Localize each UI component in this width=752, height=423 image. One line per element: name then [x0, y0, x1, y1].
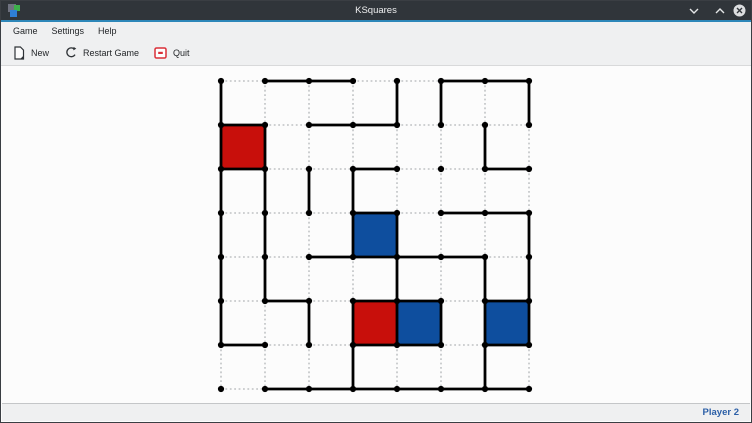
new-button-label: New: [31, 48, 49, 58]
menu-help[interactable]: Help: [91, 22, 124, 40]
captured-squares-layer: [221, 125, 529, 345]
quit-button[interactable]: Quit: [154, 47, 190, 59]
ksquares-window: KSquares Game Settings Help New: [0, 0, 752, 423]
menubar: Game Settings Help: [1, 22, 751, 40]
toolbar: New Restart Game Quit: [1, 40, 751, 66]
menu-game[interactable]: Game: [6, 22, 45, 40]
maximize-button[interactable]: [713, 5, 727, 17]
new-document-icon: [13, 46, 25, 60]
quit-button-label: Quit: [173, 48, 190, 58]
minimize-button[interactable]: [687, 5, 701, 17]
game-board[interactable]: [213, 73, 537, 397]
close-button[interactable]: [732, 4, 746, 16]
restart-icon: [64, 46, 77, 59]
menu-settings[interactable]: Settings: [45, 22, 92, 40]
statusbar: Player 2: [2, 403, 750, 421]
restart-game-button[interactable]: Restart Game: [64, 46, 139, 59]
quit-icon: [154, 47, 167, 59]
new-button[interactable]: New: [13, 46, 49, 60]
current-player-label: Player 2: [703, 404, 739, 421]
window-title: KSquares: [1, 1, 751, 20]
titlebar: KSquares: [1, 1, 751, 20]
restart-game-button-label: Restart Game: [83, 48, 139, 58]
